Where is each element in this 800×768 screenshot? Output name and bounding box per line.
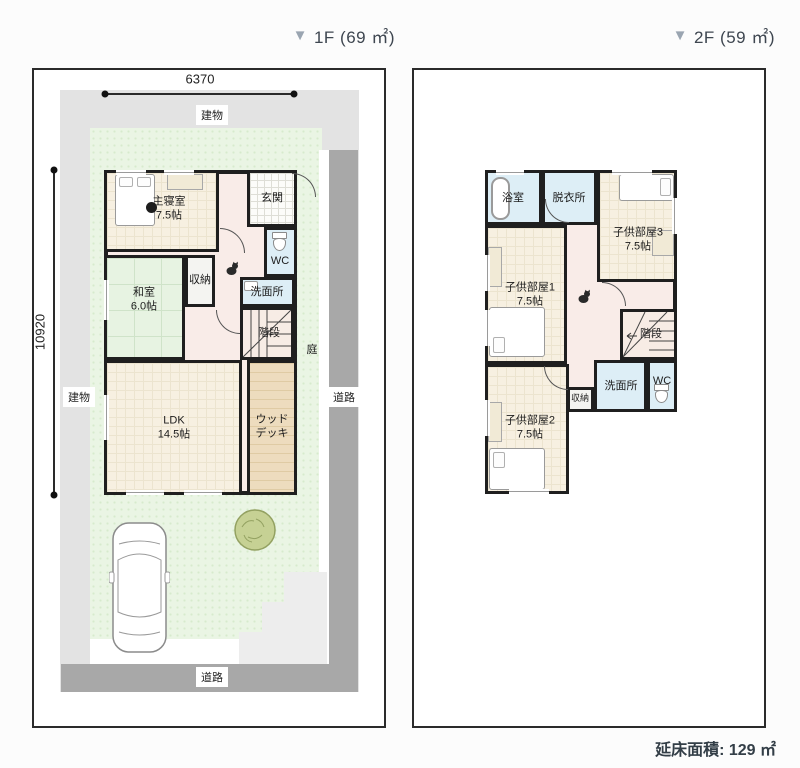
pillow-icon	[137, 177, 151, 187]
bed-icon	[115, 174, 155, 226]
dimension-dot	[51, 492, 58, 499]
room-label-kids3: 子供部屋3 7.5帖	[613, 226, 663, 255]
toilet-icon	[272, 232, 287, 251]
road-label-bottom: 道路	[196, 667, 228, 687]
room-label-storage-1f: 収納	[189, 273, 211, 287]
dimension-label-height: 10920	[33, 314, 48, 350]
floor2-section-header: ▼ 2F (59 ㎡)	[413, 24, 775, 46]
room-label-wood-deck: ウッドデッキ	[253, 413, 291, 442]
pillow-icon	[660, 178, 671, 196]
cat-icon	[576, 288, 592, 304]
floor2-header-label: 2F (59 ㎡)	[694, 23, 775, 48]
window-marker	[126, 490, 164, 495]
desk-icon	[488, 402, 502, 442]
floor1-panel: 6370 10920	[32, 68, 386, 728]
tree-icon	[232, 507, 278, 553]
dimension-dot	[51, 167, 58, 174]
room-label-master-bedroom: 主寝室 7.5帖	[153, 195, 186, 224]
dimension-line-width	[105, 93, 294, 95]
room-label-bathroom: 浴室	[502, 191, 524, 205]
total-floor-area-label: 延床面積: 129 ㎡	[655, 736, 776, 760]
approach-step	[284, 572, 327, 602]
room-label-stairs-1f: 階段	[258, 326, 280, 340]
bed-icon	[619, 174, 674, 201]
room-label-toilet-1f: WC	[271, 254, 289, 268]
room-label-japanese: 和室 6.0帖	[131, 286, 157, 315]
window-marker	[164, 170, 194, 175]
floor1-header-label: 1F (69 ㎡)	[314, 23, 395, 48]
floor2-panel: 浴室 脱衣所 子供部屋3 7.5帖 子供部屋1 7.5帖 階段 洗面所 WC 収…	[412, 68, 766, 728]
approach-step	[239, 632, 327, 664]
room-label-kids1: 子供部屋1 7.5帖	[505, 281, 555, 310]
window-marker	[116, 170, 146, 175]
window-marker	[485, 310, 490, 346]
room-label-washroom-2f: 洗面所	[605, 379, 638, 393]
room-label-stairs-2f: 階段	[640, 327, 662, 341]
window-marker	[104, 280, 109, 320]
window-marker	[485, 400, 490, 436]
dimension-dot	[291, 91, 298, 98]
dimension-line-height	[53, 170, 55, 495]
road-label-right: 道路	[328, 387, 360, 407]
room-label-storage-2f: 収納	[571, 393, 589, 405]
dimension-dot	[102, 91, 109, 98]
dimension-label-width: 6370	[186, 72, 215, 87]
desk-icon	[167, 174, 203, 190]
window-marker	[672, 198, 677, 234]
approach-step	[262, 602, 327, 632]
room-label-kids2: 子供部屋2 7.5帖	[505, 414, 555, 443]
room-label-ldk: LDK 14.5帖	[158, 414, 190, 443]
cat-icon	[224, 260, 240, 276]
building-label-left: 建物	[63, 387, 95, 407]
bed-icon	[489, 307, 545, 357]
window-marker	[104, 395, 109, 440]
car-icon	[109, 520, 170, 655]
pillow-icon	[119, 177, 133, 187]
desk-icon	[488, 247, 502, 287]
window-marker	[496, 170, 524, 175]
garden-label: 庭	[307, 343, 318, 357]
window-marker	[184, 490, 222, 495]
triangle-down-icon: ▼	[673, 28, 688, 43]
room-label-toilet-2f: WC	[653, 374, 671, 388]
triangle-down-icon: ▼	[293, 28, 308, 43]
window-marker	[485, 255, 490, 291]
window-marker	[509, 489, 549, 494]
floor1-section-header: ▼ 1F (69 ㎡)	[33, 24, 395, 46]
bed-icon	[489, 448, 545, 490]
room-label-washroom-1f: 洗面所	[251, 285, 284, 299]
pillow-icon	[493, 452, 505, 468]
building-label-top: 建物	[196, 105, 228, 125]
window-marker	[612, 170, 652, 175]
room-label-dressing: 脱衣所	[553, 191, 586, 205]
road-right	[329, 150, 358, 664]
pillow-icon	[493, 337, 505, 353]
room-label-entrance: 玄関	[261, 191, 283, 205]
